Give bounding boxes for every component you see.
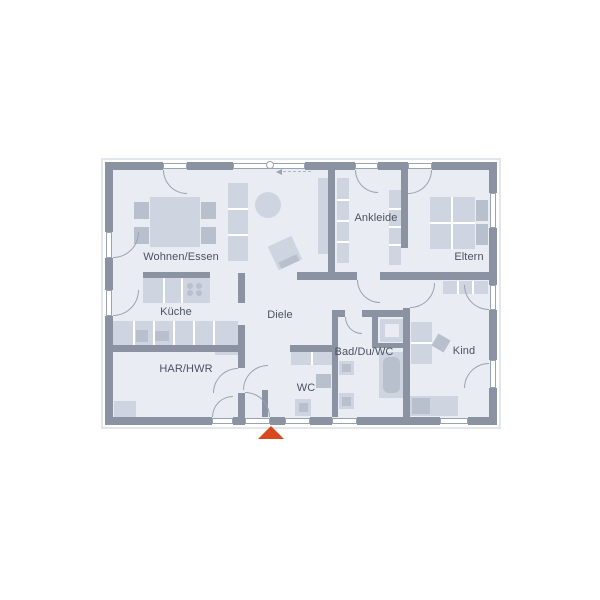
cooktop-burner xyxy=(196,290,202,296)
cooktop-burner xyxy=(196,283,202,289)
window xyxy=(408,163,432,169)
entrance-threshold xyxy=(245,418,270,424)
window xyxy=(490,360,496,388)
wc-sink xyxy=(316,374,331,388)
wall-left xyxy=(105,258,113,290)
bed-divider xyxy=(430,222,475,224)
cooktop-burner xyxy=(187,290,193,296)
room-label-kind: Kind xyxy=(453,345,475,357)
counter-divider xyxy=(133,321,135,345)
pillow xyxy=(412,398,430,414)
direction-arrow-dashes xyxy=(283,171,311,172)
chair xyxy=(201,227,216,244)
shower-base xyxy=(385,324,399,337)
wall-bottom xyxy=(105,417,212,425)
wall-right xyxy=(489,162,497,193)
room-label-kueche: Küche xyxy=(160,306,192,318)
sideboard-divider xyxy=(228,234,248,236)
counter-divider xyxy=(173,321,175,345)
room-label-eltern: Eltern xyxy=(454,251,483,263)
wall-top xyxy=(105,162,163,170)
direction-arrow-icon xyxy=(276,169,282,175)
hall-wardrobe xyxy=(318,178,328,254)
har-appliance xyxy=(114,401,136,418)
room-label-wc: WC xyxy=(297,382,316,394)
window xyxy=(440,418,468,424)
wall-top xyxy=(187,162,233,170)
window xyxy=(285,418,310,424)
wall-top xyxy=(432,162,497,170)
wall-kind-west xyxy=(403,308,410,417)
island-divider xyxy=(181,278,183,303)
wall-bad-west xyxy=(332,317,338,417)
wall-ankleide-west xyxy=(328,170,335,273)
wall-mid xyxy=(297,272,357,280)
kitchen-appliance xyxy=(155,331,169,341)
window xyxy=(163,163,187,169)
wall-right xyxy=(489,310,497,360)
wall-shower xyxy=(372,317,378,343)
wardrobe-divider xyxy=(337,199,349,201)
bad-sink-bowl xyxy=(342,364,351,372)
window xyxy=(106,232,112,258)
wall-left xyxy=(105,316,113,425)
pillow xyxy=(476,200,488,221)
counter-divider xyxy=(193,321,195,345)
room-label-wohnen-essen: Wohnen/Essen xyxy=(143,251,219,263)
window xyxy=(332,418,357,424)
wall-bottom xyxy=(233,417,245,425)
window xyxy=(490,193,496,228)
window xyxy=(106,290,112,316)
wall-bottom xyxy=(357,417,440,425)
wall-bad-north xyxy=(332,310,345,317)
wall-top xyxy=(305,162,355,170)
chair xyxy=(134,202,149,219)
room-label-ankleide: Ankleide xyxy=(355,212,398,224)
wall-ankleide-eltern xyxy=(401,170,408,248)
room-label-har-hwr: HAR/HWR xyxy=(159,363,212,375)
room-label-diele: Diele xyxy=(267,309,293,321)
cooktop-burner xyxy=(187,283,193,289)
wardrobe-divider xyxy=(337,220,349,222)
wardrobe-divider xyxy=(457,281,459,294)
island-divider xyxy=(163,278,165,303)
wall-kitchen-half xyxy=(143,272,210,278)
entrance-marker-triangle xyxy=(258,426,284,439)
wall-right xyxy=(489,228,497,285)
toilet-seat xyxy=(299,403,308,412)
wall-anchor-symbol xyxy=(266,161,274,169)
floor-plan-canvas: Wohnen/EssenKücheHAR/HWRDieleWCBad/Du/WC… xyxy=(0,0,600,600)
wardrobe-divider xyxy=(389,226,401,228)
wall-bottom xyxy=(270,417,285,425)
wall-kueche-stub xyxy=(238,273,245,303)
wardrobe-divider xyxy=(411,342,432,344)
pillow xyxy=(476,224,488,245)
wall-bad-north xyxy=(362,310,403,317)
wall-right xyxy=(489,388,497,425)
room-label-bad-du-wc: Bad/Du/WC xyxy=(335,346,394,358)
wall-top xyxy=(378,162,408,170)
bathtub-inner xyxy=(383,357,400,393)
wall-wc-north xyxy=(290,345,332,352)
kitchen-sink xyxy=(136,330,148,342)
sideboard xyxy=(228,183,248,261)
wall-kueche-har xyxy=(113,345,238,352)
wall-har-east xyxy=(238,325,245,368)
toilet-seat xyxy=(342,397,351,406)
wall-left xyxy=(105,162,113,232)
counter-divider xyxy=(311,352,313,365)
wardrobe-divider xyxy=(389,244,401,246)
window xyxy=(212,418,233,424)
wall-har-east xyxy=(238,393,245,417)
wall-mid xyxy=(380,272,489,280)
wardrobe-divider xyxy=(337,241,349,243)
round-table xyxy=(255,192,281,218)
wall-bottom xyxy=(310,417,332,425)
window xyxy=(355,163,378,169)
window xyxy=(490,285,496,310)
chair xyxy=(201,202,216,219)
wardrobe-divider xyxy=(389,208,401,210)
dining-table xyxy=(150,197,200,247)
sideboard-divider xyxy=(228,208,248,210)
